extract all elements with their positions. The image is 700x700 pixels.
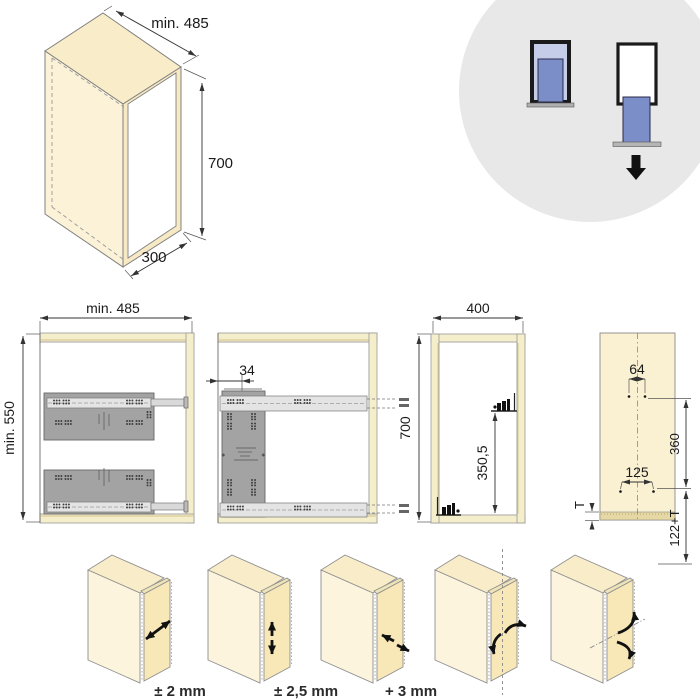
- hole-rows-label: 360: [667, 433, 682, 455]
- adjustment-label-depth: ± 2 mm: [154, 683, 206, 700]
- adjustment-cabinet-rotation: [551, 555, 645, 683]
- slide-rail-top: [220, 396, 409, 411]
- adjustment-cabinet-height: [208, 555, 292, 683]
- slide-rail-upper: [151, 399, 184, 406]
- iso-depth-label: 300: [141, 249, 166, 266]
- door-drilling-view: 64 125 360 122+T: [572, 333, 692, 564]
- front-height-label: min. 550: [1, 401, 17, 455]
- diagram-canvas: min. 485 700 300 min. 485 min. 5: [0, 0, 700, 700]
- bottom-holes-label: 125: [625, 464, 649, 480]
- dim-front-height: min. 550: [1, 334, 40, 522]
- pullout-closed-icon: [527, 40, 574, 107]
- front-view: min. 485 min. 550: [1, 300, 194, 523]
- adjustment-cabinet-tilt: [435, 549, 526, 695]
- dim-mounting-height: 700: [397, 334, 431, 522]
- adjustment-cabinet-side: [321, 555, 409, 683]
- top-holes-label: 64: [629, 361, 645, 377]
- front-width-label: min. 485: [86, 300, 140, 316]
- scale-pictogram-circle: [459, 0, 700, 222]
- isometric-cabinet-view: min. 485 700 300: [45, 6, 233, 279]
- dim-front-width: min. 485: [40, 300, 192, 333]
- adjustment-cabinet-depth: [88, 555, 172, 683]
- dim-thickness: T: [572, 501, 599, 529]
- plate-offset-label: 34: [239, 362, 255, 378]
- bracket-height-label: 350,5: [474, 445, 490, 480]
- iso-height-label: 700: [208, 155, 233, 172]
- dim-iso-height: 700: [184, 69, 233, 240]
- slide-rail-bottom: [220, 503, 409, 517]
- dim-mounting-width: 400: [433, 300, 523, 333]
- thickness-label: T: [572, 501, 587, 509]
- mounting-height-label: 700: [397, 416, 413, 440]
- slide-rail-lower: [151, 503, 184, 510]
- iso-width-label: min. 485: [151, 15, 209, 32]
- bottom-edge-label: 122+T: [667, 509, 682, 546]
- mounting-width-label: 400: [466, 300, 490, 316]
- mounting-view: 400 700: [397, 300, 525, 523]
- assembly-diagram: min. 485 700 300 min. 485 min. 5: [0, 0, 700, 700]
- side-view: 34: [206, 333, 409, 523]
- adjustment-label-side: + 3 mm: [385, 683, 437, 700]
- adjustment-label-height: ± 2,5 mm: [274, 683, 338, 700]
